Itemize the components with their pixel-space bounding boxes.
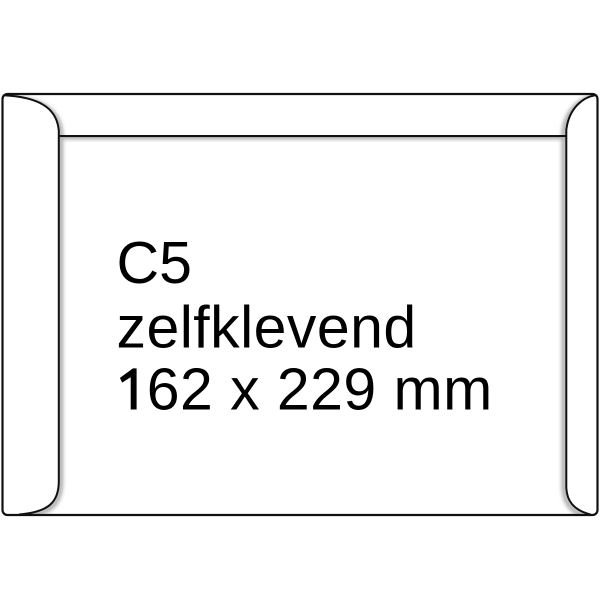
svg-text:zelfklevend: zelfklevend	[117, 295, 417, 361]
svg-text:C5: C5	[117, 230, 192, 296]
svg-text:62 x 229 mm: 62 x 229 mm	[147, 357, 493, 423]
